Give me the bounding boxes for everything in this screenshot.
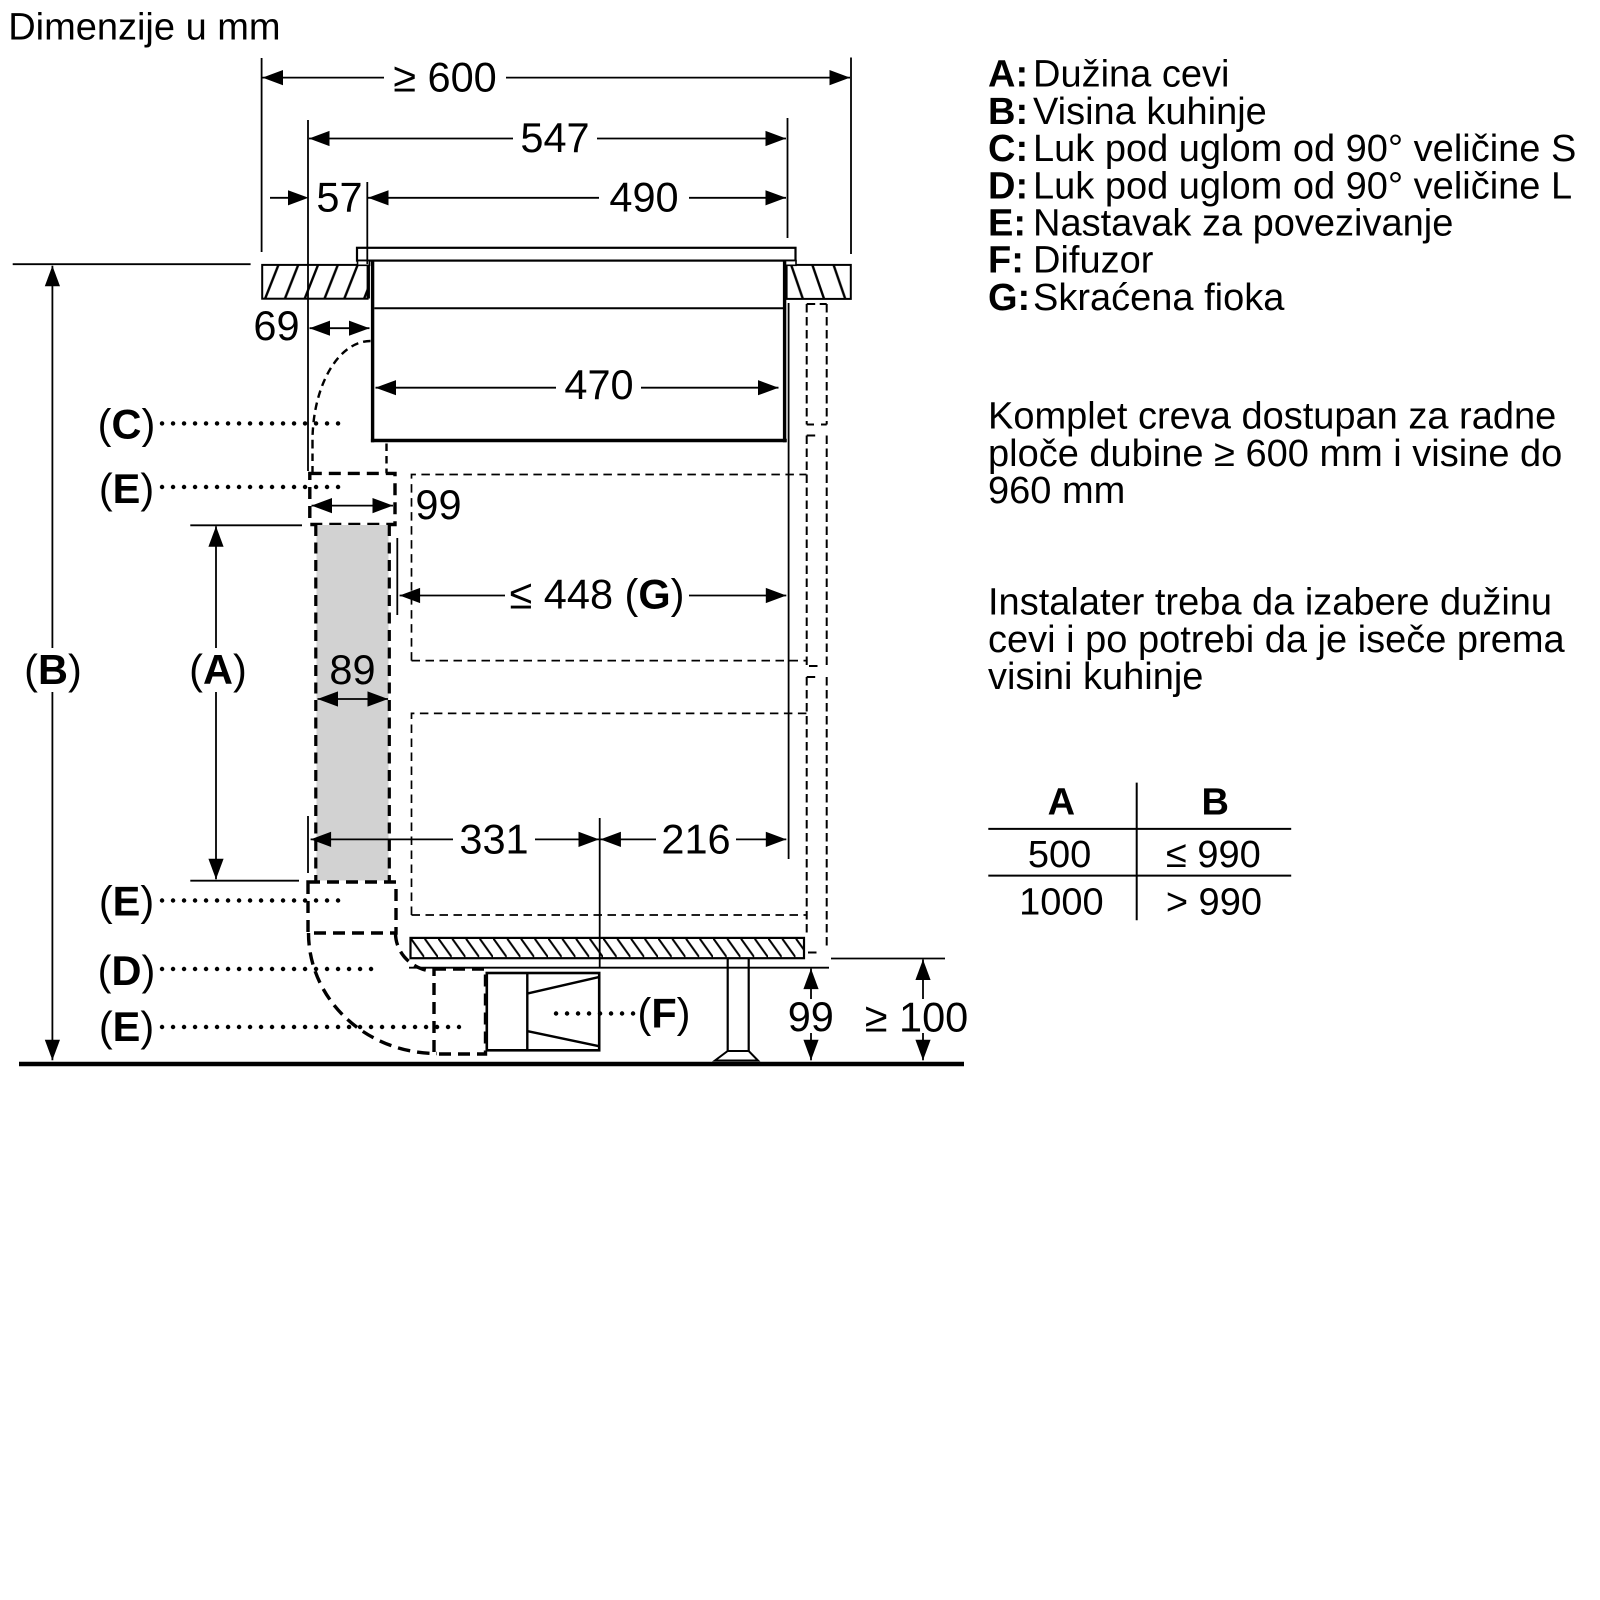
svg-text:visini kuhinje: visini kuhinje xyxy=(988,656,1203,698)
svg-text:Komplet creva dostupan za radn: Komplet creva dostupan za radne xyxy=(988,396,1556,438)
svg-text:331: 331 xyxy=(459,816,528,863)
svg-text:Skraćena fioka: Skraćena fioka xyxy=(1033,277,1285,319)
svg-text:(C): (C) xyxy=(98,401,156,448)
svg-text:(F): (F) xyxy=(637,989,690,1036)
svg-text:(B): (B) xyxy=(24,646,82,693)
svg-text:Instalater treba da izabere du: Instalater treba da izabere dužinu xyxy=(988,582,1552,624)
svg-text:A:: A: xyxy=(988,54,1028,96)
svg-text:E:: E: xyxy=(988,203,1026,245)
svg-text:B:: B: xyxy=(988,91,1028,133)
svg-text:≤ 990: ≤ 990 xyxy=(1166,834,1261,876)
svg-text:89: 89 xyxy=(329,646,375,693)
svg-text:D:: D: xyxy=(988,165,1028,207)
svg-text:≥ 600: ≥ 600 xyxy=(393,54,497,101)
svg-text:69: 69 xyxy=(253,302,299,349)
svg-text:(E): (E) xyxy=(99,465,154,512)
svg-text:490: 490 xyxy=(609,174,678,221)
svg-text:99: 99 xyxy=(415,481,461,528)
svg-text:(E): (E) xyxy=(99,877,154,924)
svg-text:547: 547 xyxy=(520,114,589,161)
svg-text:A: A xyxy=(1048,782,1075,824)
svg-text:ploče dubine ≥ 600 mm i visine: ploče dubine ≥ 600 mm i visine do xyxy=(988,433,1562,475)
svg-text:> 990: > 990 xyxy=(1166,881,1262,923)
svg-text:1000: 1000 xyxy=(1019,881,1104,923)
svg-text:cevi i po potrebi da je iseče: cevi i po potrebi da je iseče prema xyxy=(988,619,1566,661)
svg-text:F:: F: xyxy=(988,240,1024,282)
svg-text:Dužina cevi: Dužina cevi xyxy=(1033,54,1229,96)
svg-text:57: 57 xyxy=(316,174,362,221)
svg-text:500: 500 xyxy=(1028,834,1091,876)
svg-text:Difuzor: Difuzor xyxy=(1033,240,1154,282)
svg-text:99: 99 xyxy=(788,993,834,1040)
svg-text:C:: C: xyxy=(988,128,1028,170)
svg-text:≥ 100: ≥ 100 xyxy=(865,994,969,1041)
svg-text:(E): (E) xyxy=(99,1003,154,1050)
svg-text:≤ 448 (G): ≤ 448 (G) xyxy=(509,571,684,618)
svg-text:Visina kuhinje: Visina kuhinje xyxy=(1033,91,1267,133)
svg-text:(D): (D) xyxy=(98,947,156,994)
svg-text:470: 470 xyxy=(564,361,633,408)
svg-text:Nastavak za povezivanje: Nastavak za povezivanje xyxy=(1033,203,1453,245)
svg-text:(A): (A) xyxy=(189,646,247,693)
svg-text:216: 216 xyxy=(661,816,730,863)
svg-text:G:: G: xyxy=(988,277,1030,319)
svg-text:B: B xyxy=(1201,782,1228,824)
svg-text:Luk pod uglom od 90° veličine: Luk pod uglom od 90° veličine L xyxy=(1033,165,1572,207)
svg-text:Luk pod uglom od 90° veličine: Luk pod uglom od 90° veličine S xyxy=(1033,128,1576,170)
svg-text:960 mm: 960 mm xyxy=(988,470,1125,512)
svg-text:Dimenzije u mm: Dimenzije u mm xyxy=(8,7,280,49)
